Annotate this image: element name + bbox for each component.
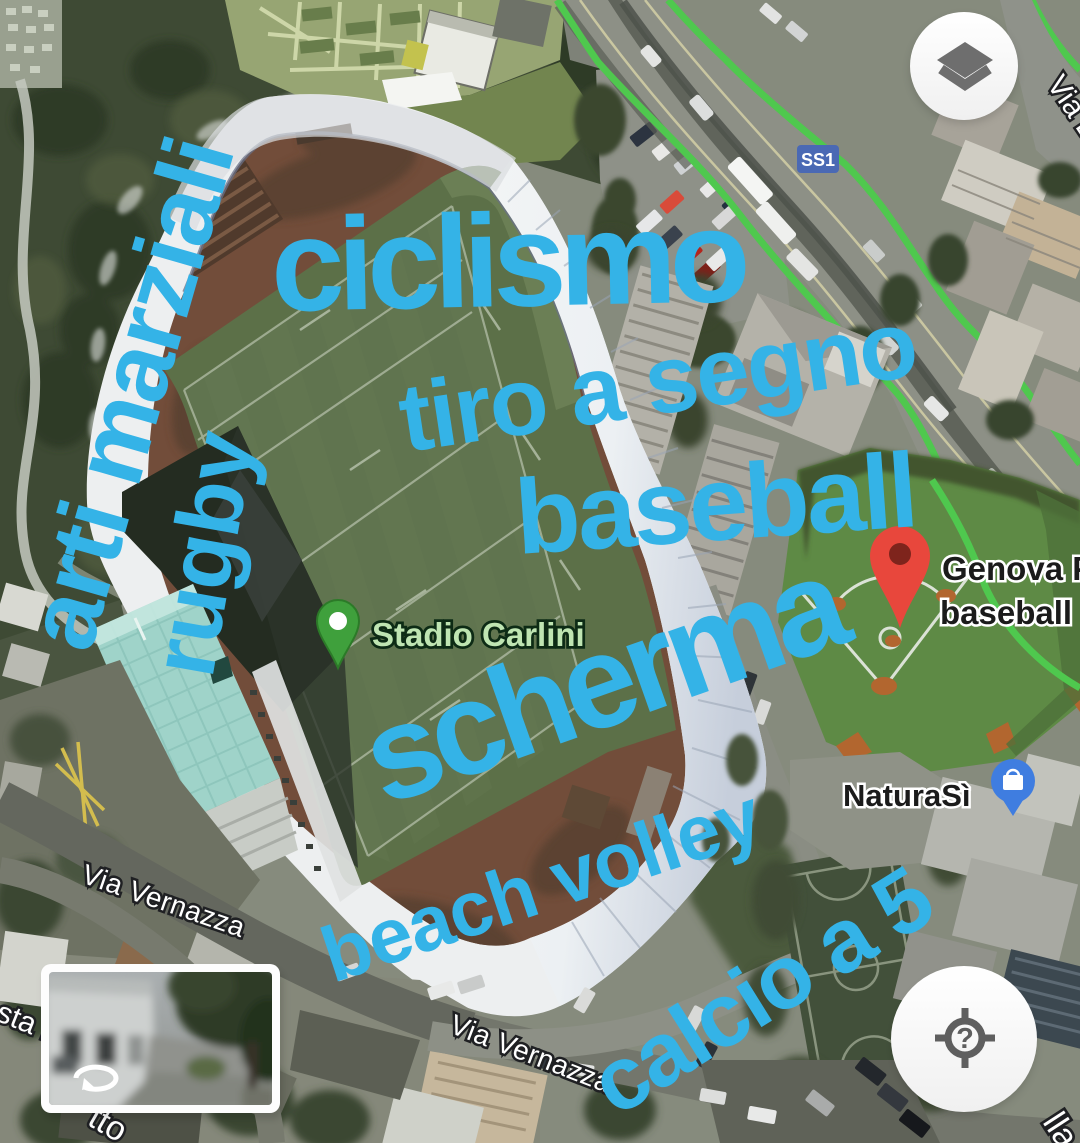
svg-text:SS1: SS1 [801,150,835,170]
svg-text:ciclismo: ciclismo [270,182,748,339]
svg-text:baseball: baseball [940,594,1072,631]
svg-text:Genova Pa: Genova Pa [942,550,1080,587]
svg-text:NaturaSì: NaturaSì [843,778,970,813]
svg-text:?: ? [956,1023,974,1055]
